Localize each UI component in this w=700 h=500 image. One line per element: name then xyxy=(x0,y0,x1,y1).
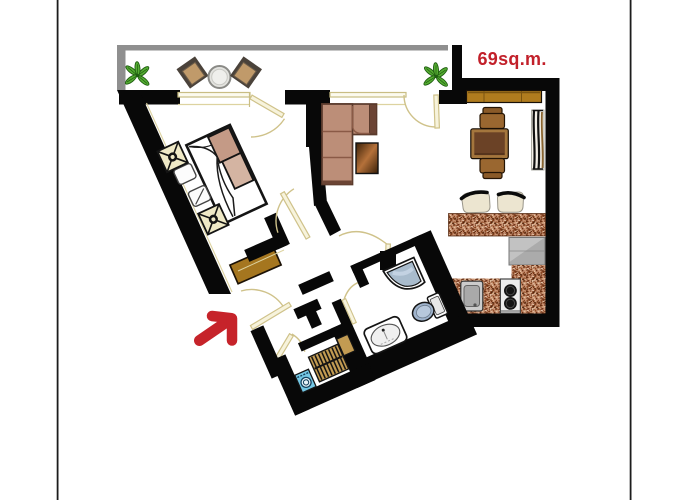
svg-text:69sq.m.: 69sq.m. xyxy=(478,49,547,69)
